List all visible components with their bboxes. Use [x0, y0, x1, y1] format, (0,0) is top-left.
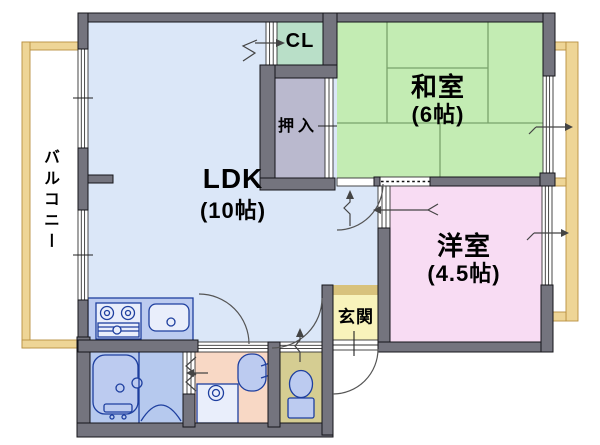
- oshiire-label: 押入: [278, 119, 318, 135]
- wash-basin-icon: [238, 354, 266, 391]
- kitchen-counter: [88, 298, 193, 341]
- youshitsu-label: 洋室: [437, 233, 491, 259]
- genkan-step: [333, 285, 378, 295]
- stove-icon: [96, 303, 141, 339]
- toilet-doorway: [280, 342, 322, 352]
- kitchen-sink-icon: [149, 304, 189, 331]
- ldk-label: LDK: [203, 165, 264, 193]
- balcony-label: バルコニー: [41, 149, 57, 254]
- entrance-door-arc: [333, 349, 378, 394]
- window-washitsu: [543, 75, 553, 173]
- floor-plan: バルコニー LDK (10帖) CL 押入 和室 (6帖) 洋室 (4.5帖) …: [0, 0, 600, 445]
- window-youshitsu: [542, 186, 552, 285]
- floor-plan-drawing: [0, 0, 600, 445]
- genkan-label: 玄関: [338, 309, 374, 326]
- washitsu-label: 和室: [411, 74, 465, 100]
- youshitsu-size-label: (4.5帖): [427, 263, 500, 285]
- washitsu-doorway: [337, 178, 377, 186]
- ldk-size-label: (10帖): [200, 200, 266, 222]
- washroom-doorway: [197, 342, 268, 352]
- washitsu-size-label: (6帖): [412, 104, 465, 126]
- cl-label: CL: [286, 31, 315, 51]
